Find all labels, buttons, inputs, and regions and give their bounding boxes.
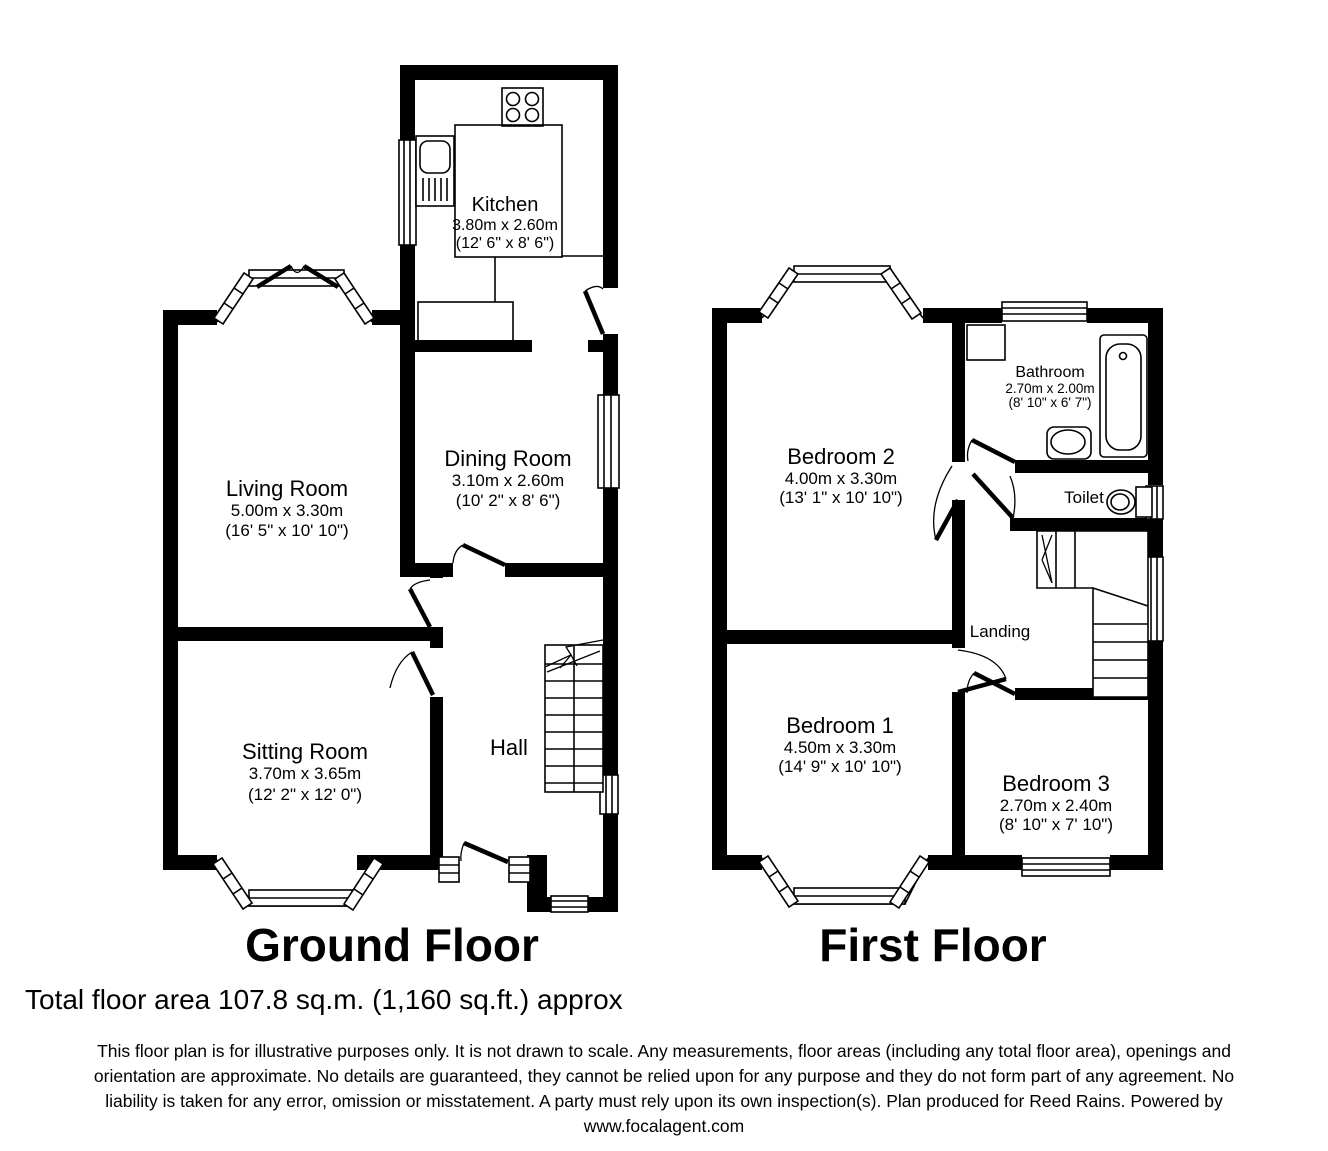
sitting-room-imperial: (12' 2" x 12' 0"): [248, 785, 362, 804]
front-door-sidelight-right: [509, 857, 530, 882]
footer: Total floor area 107.8 sq.m. (1,160 sq.f…: [25, 984, 1234, 1136]
toilet-door: [973, 474, 1015, 518]
bathroom-cupboard: [967, 325, 1005, 360]
bedroom2-name: Bedroom 2: [787, 444, 895, 469]
living-room-imperial: (16' 5" x 10' 10"): [225, 521, 348, 540]
bathroom-door: [968, 440, 1016, 462]
dining-room-door: [453, 545, 505, 565]
room-label-bathroom: Bathroom 2.70m x 2.00m (8' 10" x 6' 7"): [1005, 364, 1094, 410]
bathroom-name: Bathroom: [1015, 364, 1084, 381]
dining-room-imperial: (10' 2" x 8' 6"): [456, 491, 561, 510]
bedroom1-name: Bedroom 1: [786, 713, 894, 738]
wc-icon: [1107, 487, 1152, 517]
bathroom-metric: 2.70m x 2.00m: [1005, 381, 1094, 396]
stairs-ground: [545, 640, 603, 792]
hob-icon: [502, 88, 543, 126]
bedroom3-door: [967, 673, 1015, 694]
kitchen-back-door: [585, 286, 603, 334]
basin-icon: [1047, 427, 1091, 459]
dining-room-window: [598, 395, 619, 488]
first-floor-plan: Bedroom 2 4.00m x 3.30m (13' 1" x 10' 10…: [712, 266, 1163, 971]
bedroom1-bay-window: [759, 856, 929, 908]
first-floor-title: First Floor: [819, 919, 1047, 971]
room-label-bedroom2: Bedroom 2 4.00m x 3.30m (13' 1" x 10' 10…: [779, 444, 902, 507]
room-label-bedroom1: Bedroom 1 4.50m x 3.30m (14' 9" x 10' 10…: [778, 713, 901, 776]
room-label-dining-room: Dining Room 3.10m x 2.60m (10' 2" x 8' 6…: [444, 446, 571, 510]
front-door: [461, 843, 508, 862]
sitting-room-door: [390, 652, 433, 695]
kitchen-window: [399, 140, 416, 245]
room-label-sitting-room: Sitting Room 3.70m x 3.65m (12' 2" x 12'…: [242, 739, 368, 804]
bedroom1-metric: 4.50m x 3.30m: [784, 738, 896, 757]
disclaimer-line-4: www.focalagent.com: [583, 1116, 745, 1136]
kitchen-name: Kitchen: [472, 194, 539, 216]
room-label-living-room: Living Room 5.00m x 3.30m (16' 5" x 10' …: [225, 476, 348, 540]
disclaimer-line-2: orientation are approximate. No details …: [94, 1066, 1234, 1086]
landing-name: Landing: [970, 622, 1031, 641]
dining-room-name: Dining Room: [444, 446, 571, 471]
dining-room-metric: 3.10m x 2.60m: [452, 471, 564, 490]
stairs-first: [1037, 531, 1148, 697]
disclaimer-line-3: liability is taken for any error, omissi…: [105, 1091, 1223, 1111]
bathroom-window: [1002, 302, 1087, 321]
room-label-bedroom3: Bedroom 3 2.70m x 2.40m (8' 10" x 7' 10"…: [999, 771, 1113, 834]
front-door-sidelight-left: [439, 857, 459, 882]
bedroom3-imperial: (8' 10" x 7' 10"): [999, 815, 1113, 834]
bedroom3-metric: 2.70m x 2.40m: [1000, 796, 1112, 815]
sitting-room-name: Sitting Room: [242, 739, 368, 764]
bedroom1-imperial: (14' 9" x 10' 10"): [778, 757, 901, 776]
living-room-metric: 5.00m x 3.30m: [231, 501, 343, 520]
bedroom3-name: Bedroom 3: [1002, 771, 1110, 796]
bedroom2-metric: 4.00m x 3.30m: [785, 469, 897, 488]
bath-icon: [1100, 335, 1147, 457]
kitchen-metric: 3.80m x 2.60m: [452, 217, 558, 234]
hall-name: Hall: [490, 735, 528, 760]
living-room-name: Living Room: [226, 476, 348, 501]
floorplan-canvas: Living Room 5.00m x 3.30m (16' 5" x 10' …: [0, 0, 1328, 1151]
sink-icon: [416, 136, 454, 206]
living-room-bay-window: [214, 266, 374, 324]
bedroom2-bay-window: [759, 266, 923, 319]
total-floor-area: Total floor area 107.8 sq.m. (1,160 sq.f…: [25, 984, 623, 1015]
living-room-door: [410, 580, 430, 627]
toilet-name: Toilet: [1064, 488, 1104, 507]
bedroom2-imperial: (13' 1" x 10' 10"): [779, 488, 902, 507]
ground-floor-title: Ground Floor: [245, 919, 539, 971]
room-label-kitchen: Kitchen 3.80m x 2.60m (12' 6" x 8' 6"): [452, 194, 558, 252]
disclaimer-line-1: This floor plan is for illustrative purp…: [97, 1041, 1231, 1061]
ground-floor-plan: Living Room 5.00m x 3.30m (16' 5" x 10' …: [163, 65, 619, 971]
porch-window: [551, 896, 588, 912]
sitting-room-metric: 3.70m x 3.65m: [249, 764, 361, 783]
kitchen-imperial: (12' 6" x 8' 6"): [456, 235, 554, 252]
bedroom3-window: [1022, 858, 1110, 876]
floorplan-page: Living Room 5.00m x 3.30m (16' 5" x 10' …: [0, 0, 1328, 1151]
bathroom-imperial: (8' 10" x 6' 7"): [1008, 395, 1091, 410]
